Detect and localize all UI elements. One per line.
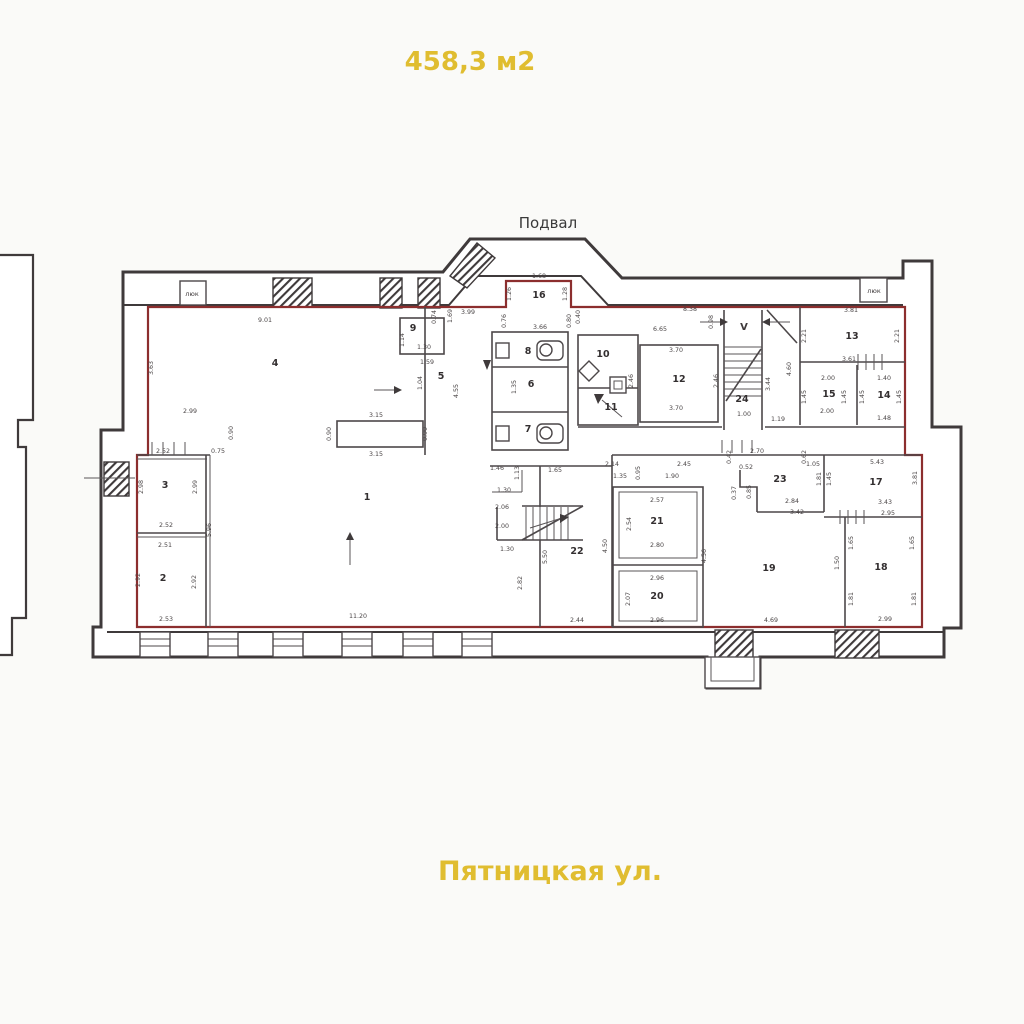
dim-label: 3.43 — [878, 499, 892, 506]
dim-label: 1.45 — [841, 390, 848, 404]
dim-label: 1.19 — [771, 416, 785, 423]
dim-label: 5.96 — [206, 523, 213, 537]
dim-label: 2.06 — [495, 504, 509, 511]
hatch-block-icon — [835, 630, 879, 658]
room-number: 20 — [650, 591, 664, 602]
dim-label: 2.57 — [650, 497, 664, 504]
dim-label: 2.99 — [183, 408, 197, 415]
dim-label: 1.26 — [506, 287, 513, 301]
dim-label: 3.70 — [669, 405, 683, 412]
dim-label: 3.63 — [148, 361, 155, 375]
window-well — [208, 632, 238, 657]
room-number: 4 — [272, 358, 279, 369]
dim-label: 3.66 — [533, 324, 547, 331]
floor-plan-page: 9.013.631.690.743.993.660.401.681.261.28… — [0, 0, 1024, 1024]
dim-label: 6.65 — [653, 326, 667, 333]
dim-label: 3.42 — [790, 509, 804, 516]
dim-label: 2.21 — [894, 329, 901, 343]
room-number: 3 — [162, 480, 169, 491]
dim-label: 2.98 — [138, 480, 145, 494]
dim-label: 2.53 — [159, 616, 173, 623]
dim-label: 4.50 — [602, 539, 609, 553]
hatch-block-icon — [418, 278, 440, 308]
window-well — [273, 632, 303, 657]
dim-label: 2.92 — [191, 575, 198, 589]
dim-label: 2.99 — [192, 480, 199, 494]
dim-label: 2.82 — [517, 576, 524, 590]
dim-label: 0.98 — [708, 315, 715, 329]
dim-label: 2.00 — [820, 408, 834, 415]
dim-label: 4.60 — [786, 362, 793, 376]
hatch-block-icon — [273, 278, 312, 307]
dim-label: 1.30 — [497, 487, 511, 494]
dim-label: 1.68 — [532, 273, 546, 280]
dim-label: 1.13 — [514, 466, 521, 480]
street-label: Пятницкая ул. — [438, 856, 662, 887]
wc-door-icon — [496, 426, 509, 441]
dim-label: 1.05 — [806, 461, 820, 468]
dim-label: 1.65 — [909, 536, 916, 550]
dim-label: 2.52 — [159, 522, 173, 529]
dim-label: 1.81 — [848, 592, 855, 606]
toilet-icon — [540, 344, 552, 356]
dim-label: 3.81 — [912, 471, 919, 485]
window-well — [462, 632, 492, 657]
room-number: 18 — [874, 562, 888, 573]
dim-label: 2.52 — [156, 448, 170, 455]
hatch-block-icon — [104, 462, 129, 496]
dim-label: 2.70 — [750, 448, 764, 455]
dim-label: 1.48 — [877, 415, 891, 422]
room-number: 13 — [845, 331, 858, 342]
room-number: 23 — [773, 474, 786, 485]
dim-label: 2.95 — [881, 510, 895, 517]
dim-label: 2.51 — [158, 542, 172, 549]
room-number: 11 — [604, 402, 617, 413]
floor-plan-canvas: 9.013.631.690.743.993.660.401.681.261.28… — [0, 0, 1024, 1024]
dim-label: 2.14 — [605, 461, 619, 468]
dim-label: 1.45 — [801, 390, 808, 404]
dim-label: 2.99 — [878, 616, 892, 623]
dim-label: 2.46 — [628, 374, 635, 388]
room-number: 7 — [525, 424, 532, 435]
window-well — [403, 632, 433, 657]
dim-label: 8.38 — [683, 306, 697, 313]
room-number: 10 — [596, 349, 610, 360]
dim-label: 0.37 — [731, 486, 738, 500]
hatch-block-icon — [380, 278, 402, 308]
room-number: 5 — [438, 371, 445, 382]
dim-label: 1.46 — [490, 465, 504, 472]
dim-label: 0.85 — [746, 485, 753, 499]
dim-label: 1.50 — [834, 556, 841, 570]
room-number: 9 — [410, 323, 417, 334]
dim-label: 3.44 — [765, 377, 772, 391]
dim-label: 1.69 — [447, 309, 454, 323]
wc-door-icon — [496, 343, 509, 358]
dim-label: 0.74 — [431, 310, 438, 324]
dim-label: 1.90 — [665, 473, 679, 480]
room-number: 19 — [762, 563, 775, 574]
dim-label: 1.81 — [911, 592, 918, 606]
dim-label: 0.40 — [575, 310, 582, 324]
dim-label: 3.61 — [842, 356, 856, 363]
dim-label: 4.55 — [453, 384, 460, 398]
room-number: 14 — [877, 390, 891, 401]
dim-label: 1.30 — [417, 344, 431, 351]
dim-label: люк — [185, 290, 199, 298]
dim-label: 0.42 — [726, 450, 733, 464]
dim-label: 5.43 — [870, 459, 884, 466]
dim-label: 9.01 — [258, 317, 272, 324]
dim-label: 1.65 — [848, 536, 855, 550]
dim-label: 1.45 — [859, 390, 866, 404]
dim-label: 2.80 — [650, 542, 664, 549]
dim-label: 2.21 — [801, 329, 808, 343]
dim-label: 0.52 — [739, 464, 753, 471]
dim-label: 4.69 — [764, 617, 778, 624]
room-number: 8 — [525, 346, 532, 357]
dim-label: 0.80 — [566, 314, 573, 328]
room-number: 6 — [528, 379, 535, 390]
dim-label: 0.75 — [211, 448, 225, 455]
room-number: 21 — [650, 516, 663, 527]
room-number: 22 — [570, 546, 583, 557]
hatch-block-icon — [715, 630, 753, 658]
dim-label: 2.00 — [821, 375, 835, 382]
area-title: 458,3 м2 — [405, 47, 536, 77]
dim-label: 0.90 — [422, 427, 429, 441]
room-number: 24 — [735, 394, 749, 405]
dim-label: 0.90 — [326, 427, 333, 441]
dim-label: 1.00 — [737, 411, 751, 418]
room-number: 17 — [869, 477, 882, 488]
dim-label: 3.70 — [669, 347, 683, 354]
dim-label: 4.56 — [701, 549, 708, 563]
dim-label: 1.59 — [420, 359, 434, 366]
dim-label: 1.81 — [816, 472, 823, 486]
room-number: 15 — [822, 389, 835, 400]
dim-label: 2.96 — [650, 575, 664, 582]
dim-label: 1.35 — [613, 473, 627, 480]
dim-label: 2.44 — [570, 617, 584, 624]
dim-label: 1.04 — [417, 376, 424, 390]
dim-label: 0.76 — [501, 314, 508, 328]
dim-label: 2.54 — [626, 517, 633, 531]
floor-label: Подвал — [519, 214, 577, 232]
dim-label: 0.90 — [228, 426, 235, 440]
dim-label: 1.65 — [548, 467, 562, 474]
stair-direction-mark: V — [740, 322, 748, 333]
dim-label: 0.95 — [635, 466, 642, 480]
dim-label: 3.99 — [461, 309, 475, 316]
dim-label: 1.28 — [562, 287, 569, 301]
vestibule-outline — [705, 657, 760, 688]
room-number: 12 — [672, 374, 685, 385]
dim-label: 1.45 — [826, 472, 833, 486]
dim-label: 11.20 — [349, 613, 367, 620]
dim-label: 3.15 — [369, 451, 383, 458]
dim-label: 1.40 — [877, 375, 891, 382]
dim-label: 2.84 — [785, 498, 799, 505]
dim-label: 3.15 — [369, 412, 383, 419]
basin-icon — [610, 377, 626, 393]
dim-label: 5.50 — [542, 550, 549, 564]
dim-label: 2.96 — [650, 617, 664, 624]
dim-label: 2.92 — [135, 573, 142, 587]
window-well — [140, 632, 170, 657]
dim-label: 2.07 — [625, 592, 632, 606]
dim-label: 2.45 — [677, 461, 691, 468]
toilet-icon — [540, 427, 552, 439]
window-well — [342, 632, 372, 657]
dim-label: 2.46 — [713, 374, 720, 388]
dim-label: 3.81 — [844, 307, 858, 314]
dim-label: 1.35 — [511, 380, 518, 394]
room-number: 2 — [160, 573, 167, 584]
room-number: 1 — [364, 492, 371, 503]
dim-label: 2.00 — [495, 523, 509, 530]
dim-label: 1.30 — [500, 546, 514, 553]
dim-label: 1.14 — [399, 333, 406, 347]
dim-label: люк — [867, 287, 881, 295]
dim-label: 1.45 — [896, 390, 903, 404]
room-number: 16 — [532, 290, 546, 301]
